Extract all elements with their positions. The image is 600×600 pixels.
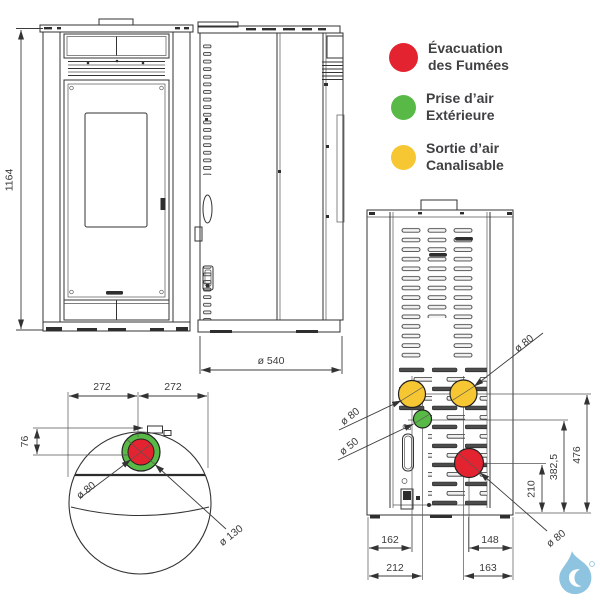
watermark-drop-logo bbox=[559, 551, 594, 594]
legend-intake-line2: Extérieure bbox=[426, 107, 494, 123]
legend: Évacuation des Fumées Prise d’air Extéri… bbox=[389, 32, 589, 182]
bottom-dim-212: 212 bbox=[386, 562, 404, 574]
legend-item-air-intake: Prise d’air Extérieure bbox=[389, 82, 589, 132]
side-depth-dimension: ø 540 bbox=[200, 336, 342, 374]
air-intake-green-dot-icon bbox=[391, 95, 416, 120]
side-fins bbox=[322, 62, 343, 86]
side-vent-slots-lower bbox=[202, 267, 213, 320]
front-height-label: 1164 bbox=[4, 169, 16, 192]
side-depth-label: ø 540 bbox=[258, 355, 285, 367]
air-intake-port bbox=[414, 410, 432, 428]
legend-duct-line2: Canalisable bbox=[426, 157, 504, 173]
rear-view: ø 80 ø 80 ø 50 ø 80 210 382,5 476 162 14… bbox=[337, 200, 591, 580]
rear-service-panel bbox=[401, 425, 431, 510]
smoke-dia-label: ø 80 bbox=[544, 527, 568, 549]
stove-dimension-sheet: 1164 bbox=[0, 0, 600, 600]
brand-plate bbox=[106, 291, 123, 295]
rear-height-dimensions: 210 382,5 476 bbox=[526, 395, 588, 512]
legend-smoke-line2: des Fumées bbox=[428, 57, 509, 73]
smoke-red-dot-icon bbox=[389, 43, 418, 72]
front-height-dimension: 1164 bbox=[4, 29, 44, 331]
door-window bbox=[85, 113, 147, 227]
legend-duct-line1: Sortie d’air bbox=[426, 140, 499, 156]
legend-smoke-line1: Évacuation bbox=[428, 40, 503, 56]
front-door bbox=[64, 80, 169, 300]
registered-mark-icon bbox=[590, 562, 595, 567]
top-width-left-label: 272 bbox=[93, 381, 111, 393]
smoke-height-label: 210 bbox=[526, 480, 538, 498]
top-collar-dia-label: ø 130 bbox=[217, 523, 246, 549]
bottom-dim-162: 162 bbox=[381, 534, 399, 546]
top-view: 272 272 76 ø 80 ø 130 bbox=[19, 381, 246, 574]
front-air-grille bbox=[68, 60, 165, 76]
side-vent-slots-upper bbox=[202, 43, 213, 175]
top-smoke-dia-label: ø 80 bbox=[74, 479, 98, 501]
legend-intake-line1: Prise d’air bbox=[426, 90, 494, 106]
rear-bottom-dimensions: 162 148 212 163 bbox=[368, 517, 513, 580]
side-handle bbox=[203, 195, 212, 223]
bottom-dim-148: 148 bbox=[481, 534, 499, 546]
bottom-dim-163: 163 bbox=[479, 562, 497, 574]
duct-height-label: 476 bbox=[571, 446, 583, 464]
legend-item-duct-air: Sortie d’air Canalisable bbox=[389, 132, 589, 182]
rear-vent-col-left bbox=[401, 318, 422, 360]
duct-right-dia-label: ø 80 bbox=[512, 332, 536, 354]
front-view: 1164 bbox=[4, 19, 194, 331]
top-width-right-label: 272 bbox=[164, 381, 182, 393]
intake-height-label: 382,5 bbox=[548, 454, 560, 480]
side-view: ø 540 bbox=[195, 22, 344, 374]
top-offset-label: 76 bbox=[19, 436, 31, 448]
duct-air-yellow-dot-icon bbox=[391, 145, 416, 170]
legend-item-smoke: Évacuation des Fumées bbox=[389, 32, 589, 82]
rear-vent-col-right bbox=[453, 318, 474, 360]
